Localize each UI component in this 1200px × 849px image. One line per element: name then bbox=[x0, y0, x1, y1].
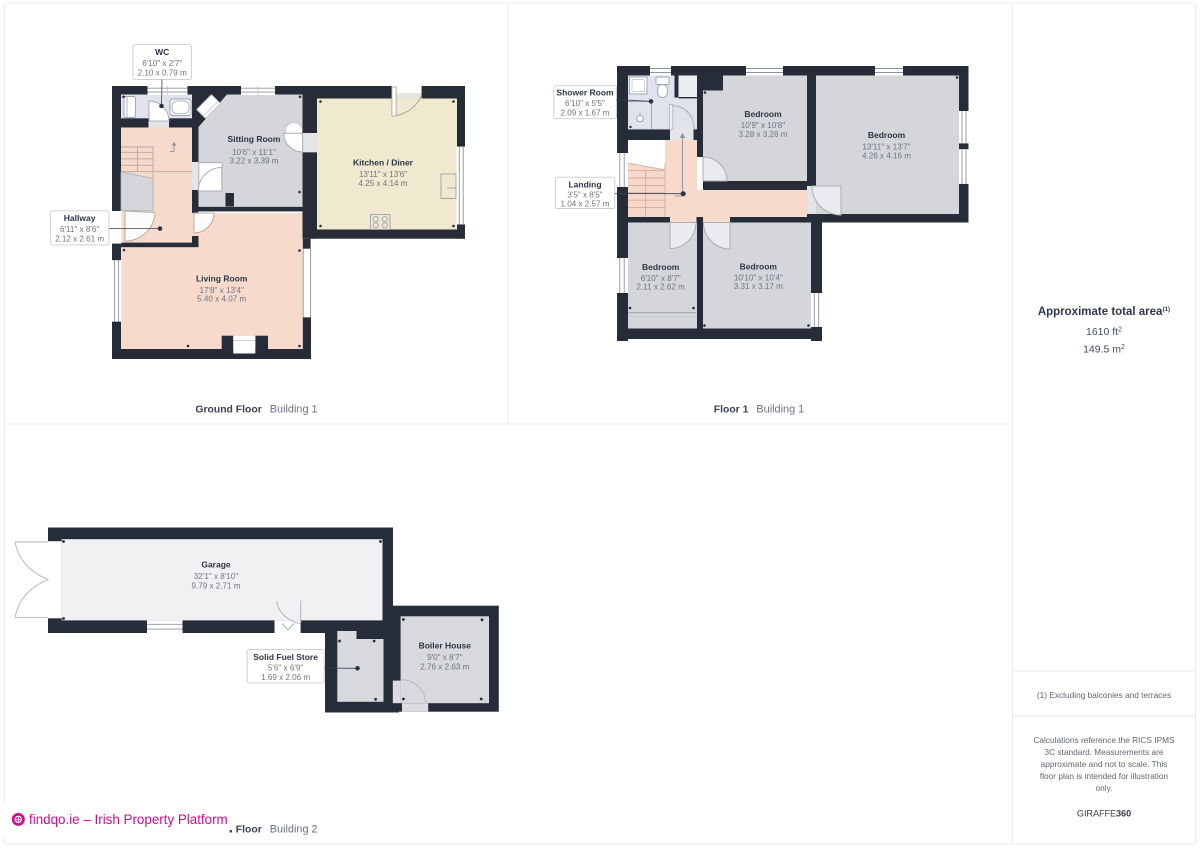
svg-text:Shower Room: Shower Room bbox=[556, 88, 614, 98]
svg-text:3'5" x 8'5": 3'5" x 8'5" bbox=[567, 191, 603, 200]
svg-text:149.5 m2: 149.5 m2 bbox=[1083, 344, 1125, 356]
svg-text:10'9" x 10'8": 10'9" x 10'8" bbox=[741, 121, 786, 130]
svg-text:1.69 x 2.06 m: 1.69 x 2.06 m bbox=[261, 673, 310, 682]
svg-text:Sitting Room: Sitting Room bbox=[228, 134, 281, 144]
svg-text:5.40 x 4.07 m: 5.40 x 4.07 m bbox=[197, 295, 246, 304]
svg-text:13'11" x 13'7": 13'11" x 13'7" bbox=[862, 143, 910, 152]
svg-text:17'8" x 13'4": 17'8" x 13'4" bbox=[200, 286, 245, 295]
svg-text:Calculations reference the RIC: Calculations reference the RICS IPMS bbox=[1033, 735, 1175, 745]
svg-text:3C standard. Measurements are: 3C standard. Measurements are bbox=[1045, 747, 1164, 757]
svg-text:6'10" x 5'5": 6'10" x 5'5" bbox=[565, 99, 605, 108]
svg-text:Approximate total area(1): Approximate total area(1) bbox=[1038, 306, 1170, 318]
svg-text:3.31 x 3.17 m: 3.31 x 3.17 m bbox=[734, 282, 783, 291]
svg-text:1.04 x 2.57 m: 1.04 x 2.57 m bbox=[560, 200, 609, 209]
svg-text:Garage: Garage bbox=[201, 560, 231, 570]
svg-text:WC: WC bbox=[155, 47, 169, 57]
svg-text:Bedroom: Bedroom bbox=[642, 262, 680, 272]
svg-text:2.10 x 0.79 m: 2.10 x 0.79 m bbox=[138, 69, 187, 78]
svg-text:9'0" x 8'7": 9'0" x 8'7" bbox=[427, 653, 463, 662]
svg-text:Solid Fuel Store: Solid Fuel Store bbox=[253, 652, 318, 662]
svg-text:3.28 x 3.26 m: 3.28 x 3.26 m bbox=[738, 130, 787, 139]
svg-text:3.22 x 3.39 m: 3.22 x 3.39 m bbox=[229, 157, 278, 166]
svg-text:6'11" x 8'6": 6'11" x 8'6" bbox=[60, 225, 99, 234]
svg-text:Bedroom: Bedroom bbox=[740, 262, 778, 272]
svg-text:Bedroom: Bedroom bbox=[868, 130, 906, 140]
svg-text:2.09 x 1.67 m: 2.09 x 1.67 m bbox=[560, 109, 609, 118]
svg-text:(1) Excluding balconies and te: (1) Excluding balconies and terraces bbox=[1037, 690, 1171, 700]
svg-text:floor plan is intended for ill: floor plan is intended for illustration bbox=[1040, 771, 1169, 781]
svg-text:only.: only. bbox=[1096, 783, 1113, 793]
svg-text:6'10" x 2'7": 6'10" x 2'7" bbox=[142, 59, 182, 68]
svg-text:13'11" x 13'6": 13'11" x 13'6" bbox=[359, 170, 407, 179]
svg-text:Landing: Landing bbox=[568, 180, 601, 190]
svg-text:findqo.ie – Irish Property Pla: findqo.ie – Irish Property Platform bbox=[29, 812, 228, 827]
svg-text:approximate and not to scale.: approximate and not to scale. This bbox=[1041, 759, 1168, 769]
svg-text:5'6" x 6'9": 5'6" x 6'9" bbox=[268, 664, 304, 673]
svg-text:32'1" x 8'10": 32'1" x 8'10" bbox=[194, 572, 239, 581]
svg-text:9.79 x 2.71 m: 9.79 x 2.71 m bbox=[191, 582, 240, 591]
svg-text:Boiler House: Boiler House bbox=[419, 641, 472, 651]
svg-text:1610 ft2: 1610 ft2 bbox=[1086, 326, 1122, 338]
svg-text:Kitchen / Diner: Kitchen / Diner bbox=[353, 158, 414, 168]
svg-text:Bedroom: Bedroom bbox=[744, 109, 782, 119]
svg-text:Floor 1Building 1: Floor 1Building 1 bbox=[714, 404, 804, 416]
svg-text:2.76 x 2.63 m: 2.76 x 2.63 m bbox=[420, 663, 469, 672]
svg-text:GIRAFFE360: GIRAFFE360 bbox=[1077, 809, 1131, 819]
svg-text:Ground FloorBuilding 1: Ground FloorBuilding 1 bbox=[195, 404, 317, 416]
svg-text:Hallway: Hallway bbox=[64, 213, 96, 223]
svg-text:2.12 x 2.61 m: 2.12 x 2.61 m bbox=[55, 234, 104, 243]
svg-text:4.25 x 4.14 m: 4.25 x 4.14 m bbox=[358, 179, 407, 188]
svg-text:Living Room: Living Room bbox=[196, 274, 248, 284]
svg-text:4.26 x 4.16 m: 4.26 x 4.16 m bbox=[862, 152, 911, 161]
svg-text:2.11 x 2.62 m: 2.11 x 2.62 m bbox=[636, 283, 685, 292]
